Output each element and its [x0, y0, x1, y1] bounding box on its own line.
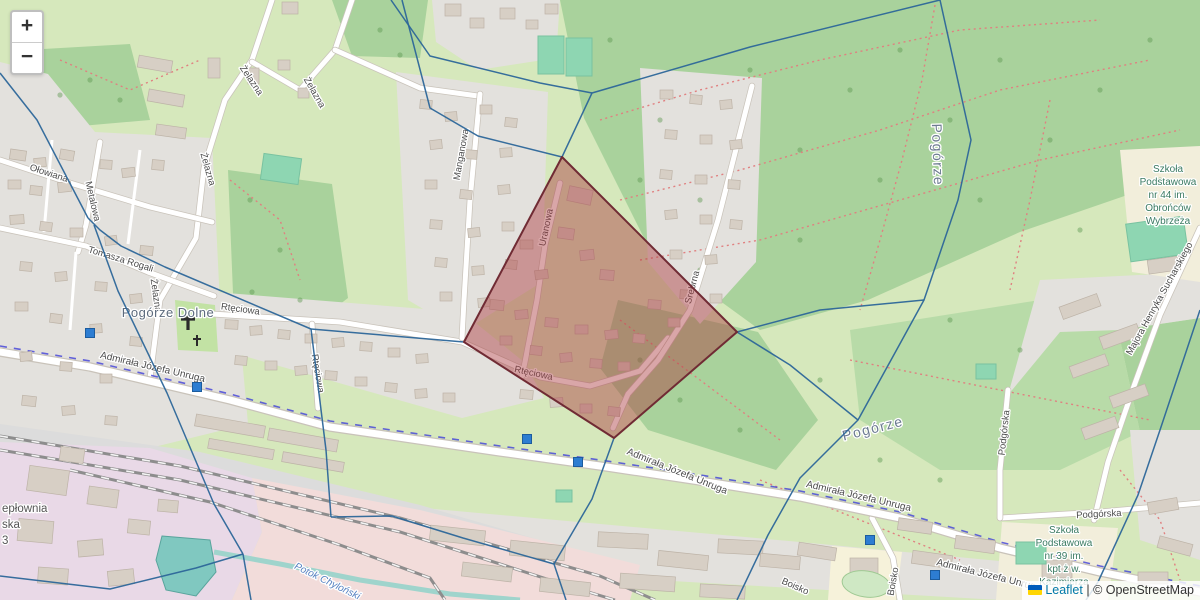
powerplant-label: epłownia — [2, 503, 48, 515]
basemap-svg[interactable]: OłowianaMetalowaTomasza RogaliŻelaznaŻel… — [0, 0, 1200, 600]
attribution-bar: Leaflet | © OpenStreetMap — [1022, 581, 1200, 600]
powerplant-label: 3 — [2, 535, 8, 547]
school-label: Wybrzeża — [1146, 216, 1191, 227]
zoom-control: + − — [10, 10, 44, 75]
school-label: nr 44 im. — [1149, 190, 1188, 201]
school-label: nr 39 im. — [1045, 551, 1084, 562]
school-label: Podstawowa — [1036, 538, 1093, 549]
stop-marker[interactable] — [866, 536, 875, 545]
school-label: Obrońców — [1145, 203, 1191, 214]
stop-marker[interactable] — [931, 571, 940, 580]
map-canvas[interactable]: OłowianaMetalowaTomasza RogaliŻelaznaŻel… — [0, 0, 1200, 600]
osm-copyright[interactable]: © OpenStreetMap — [1093, 583, 1194, 597]
place-label: Pogórze Dolne — [122, 305, 215, 320]
ukraine-flag-icon — [1028, 585, 1042, 595]
stop-marker[interactable] — [574, 458, 583, 467]
school-label: Szkoła — [1153, 164, 1183, 175]
stop-marker[interactable] — [86, 329, 95, 338]
zoom-in-button[interactable]: + — [12, 12, 42, 43]
school-label: Podstawowa — [1140, 177, 1197, 188]
zoom-out-button[interactable]: − — [12, 43, 42, 73]
leaflet-link[interactable]: Leaflet — [1045, 583, 1083, 597]
attribution-separator: | — [1086, 583, 1089, 597]
school-label: kpt ż w. — [1047, 564, 1080, 575]
powerplant-label: ska — [2, 519, 21, 531]
place-label: Pogórze — [929, 123, 947, 186]
stop-marker[interactable] — [193, 383, 202, 392]
stop-marker[interactable] — [523, 435, 532, 444]
school-label: Szkoła — [1049, 525, 1079, 536]
